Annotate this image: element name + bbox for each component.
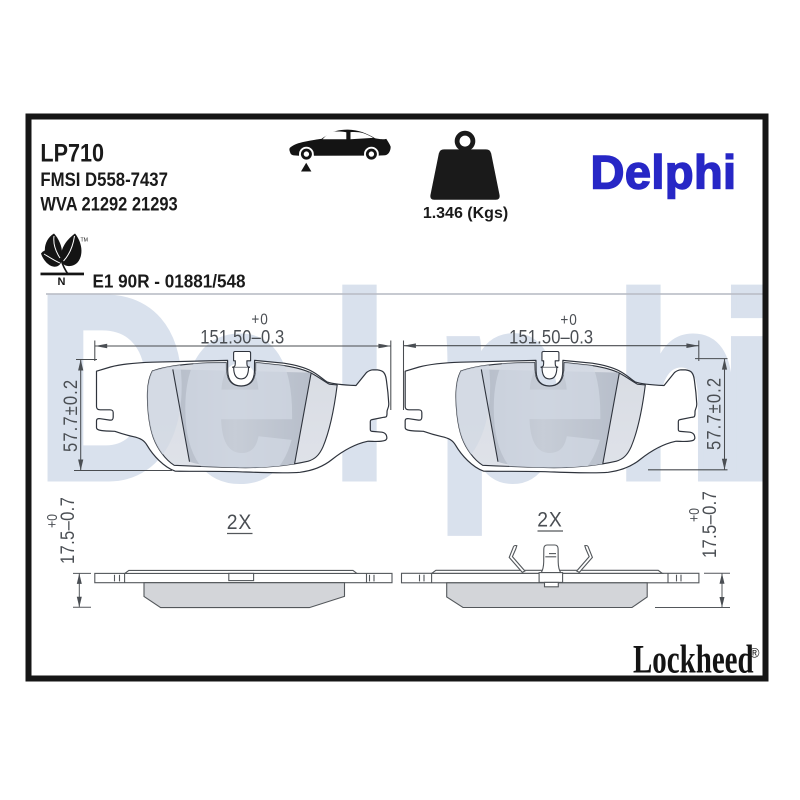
svg-text:+0: +0 bbox=[44, 514, 60, 528]
svg-text:Delphi: Delphi bbox=[591, 146, 737, 199]
svg-text:WVA 21292 21293: WVA 21292 21293 bbox=[40, 193, 177, 215]
svg-text:+0: +0 bbox=[560, 312, 577, 329]
svg-text:+0: +0 bbox=[686, 508, 702, 522]
svg-text:17.5–0.7: 17.5–0.7 bbox=[699, 491, 721, 558]
svg-text:2X: 2X bbox=[537, 508, 562, 532]
svg-text:151.50–0.3: 151.50–0.3 bbox=[200, 326, 284, 348]
svg-text:E1 90R - 01881/548: E1 90R - 01881/548 bbox=[93, 271, 246, 292]
svg-text:Lockheed: Lockheed bbox=[633, 637, 754, 682]
svg-text:N: N bbox=[58, 276, 66, 288]
svg-text:57.7±0.2: 57.7±0.2 bbox=[60, 379, 82, 452]
svg-text:151.50–0.3: 151.50–0.3 bbox=[509, 326, 593, 348]
svg-text:2X: 2X bbox=[227, 510, 252, 534]
svg-text:®: ® bbox=[750, 646, 760, 661]
svg-text:TM: TM bbox=[81, 238, 89, 244]
svg-text:FMSI D558-7437: FMSI D558-7437 bbox=[40, 169, 168, 190]
svg-text:LP710: LP710 bbox=[40, 139, 104, 167]
svg-text:1.346 (Kgs): 1.346 (Kgs) bbox=[423, 205, 508, 222]
svg-text:17.5–0.7: 17.5–0.7 bbox=[57, 497, 79, 564]
svg-text:57.7±0.2: 57.7±0.2 bbox=[703, 377, 725, 450]
svg-text:+0: +0 bbox=[251, 312, 268, 329]
